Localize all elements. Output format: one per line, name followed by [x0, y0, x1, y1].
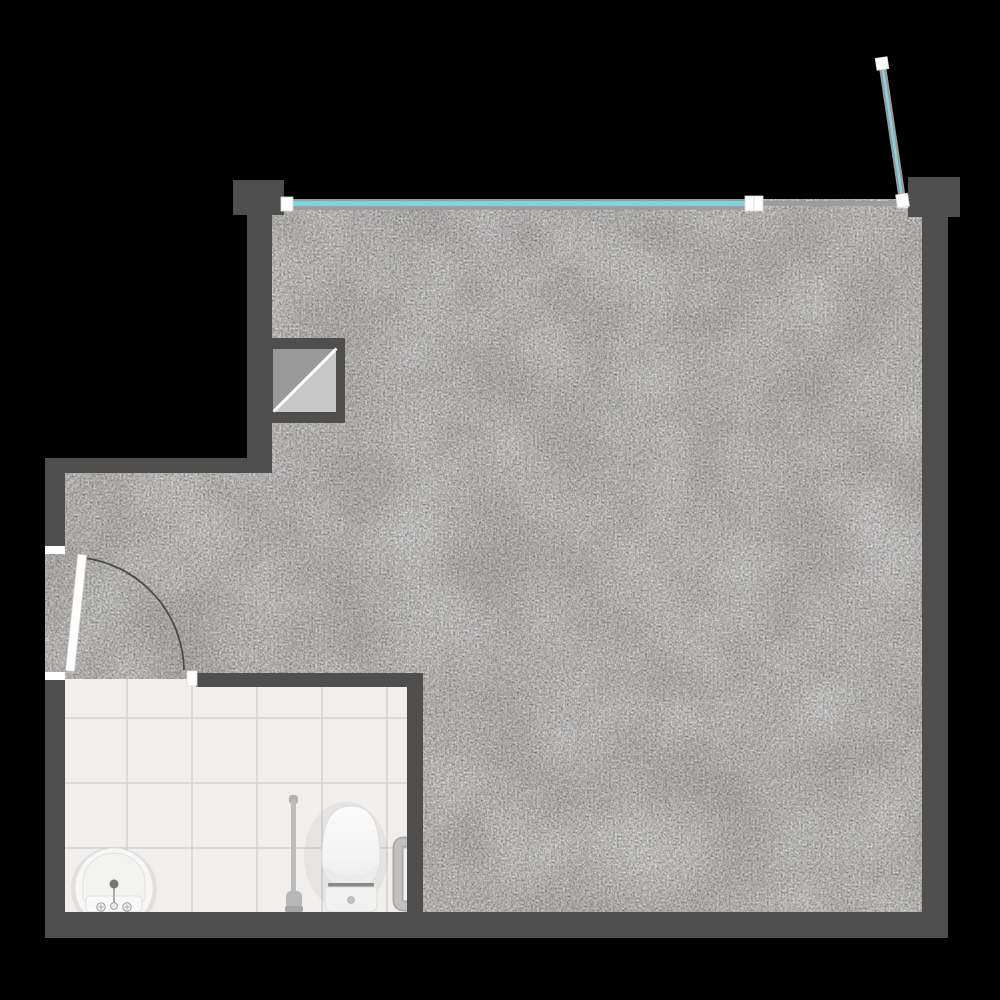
toilet-hinge — [328, 883, 374, 887]
bathroom-doorway-cap — [187, 671, 197, 686]
brush-handle — [291, 799, 296, 897]
open-pane-cap-bottom — [896, 193, 910, 208]
open-pane-cap-top — [875, 57, 889, 71]
faucet-dot — [110, 880, 119, 889]
floor-plan — [0, 0, 1000, 1000]
door-jamb-cap-top — [45, 546, 65, 554]
faucet-spout-end — [111, 903, 118, 910]
window-frame-outer — [284, 199, 745, 201]
wall-left-lower — [45, 672, 65, 938]
wall-pillar-top-right — [908, 177, 960, 217]
bathroom-wall-right — [407, 673, 423, 912]
open-pane-glass — [882, 70, 903, 193]
door-jamb-cap-bottom — [45, 672, 65, 680]
wall-horizontal-step — [45, 458, 272, 473]
floor-plan-canvas — [0, 0, 1000, 1000]
window-glass — [284, 201, 745, 206]
brush-base — [285, 906, 303, 912]
window-frame-inner — [284, 206, 745, 210]
flush-button — [348, 897, 355, 904]
open-window-sill-line — [763, 201, 898, 206]
duct-shaft — [273, 349, 337, 413]
wall-bottom — [45, 912, 948, 938]
wall-left-upper — [45, 458, 65, 554]
open-window-pane — [875, 57, 909, 208]
window-end-cap-left — [281, 197, 293, 211]
wall-pillar-top-left — [233, 180, 284, 215]
wall-right — [922, 205, 948, 912]
bathroom-wall-top — [196, 673, 423, 687]
